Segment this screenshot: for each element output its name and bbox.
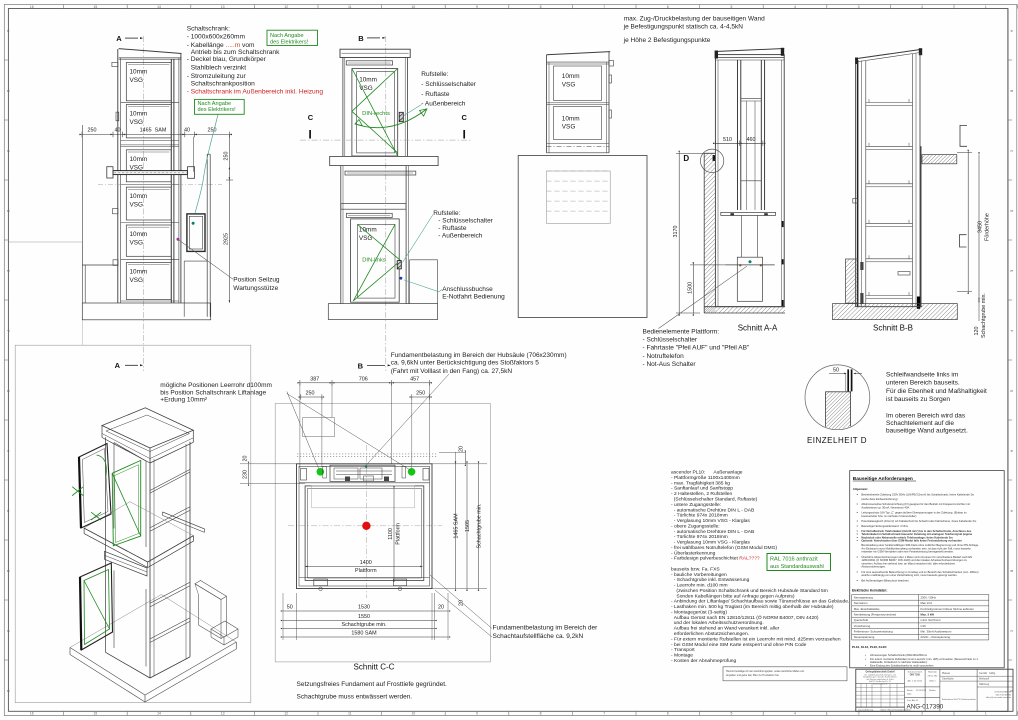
svg-text:Max. Einschaltstärke: Max. Einschaltstärke <box>854 607 880 611</box>
svg-text:(zwischen Position Schaltschra: (zwischen Position Schaltschrank und Ber… <box>671 588 828 594</box>
svg-text:10mm: 10mm <box>130 269 148 276</box>
svg-text:- Außenbereich: - Außenbereich <box>421 101 465 108</box>
svg-text:230: 230 <box>243 470 249 479</box>
svg-text:C: C <box>308 113 314 122</box>
svg-text:- Montage: - Montage <box>671 653 693 659</box>
svg-text:5: 5 <box>730 5 732 9</box>
svg-text:Nach Angabe: Nach Angabe <box>198 101 232 107</box>
svg-text:Maßstab: Maßstab <box>928 670 937 673</box>
svg-text:Vorsicherung: Vorsicherung <box>854 624 871 628</box>
svg-text:VSG: VSG <box>359 235 373 242</box>
svg-text:Hausverteiler bzw. im nächsten: Hausverteiler bzw. im nächsten Untervert… <box>861 514 916 518</box>
svg-text:1550: 1550 <box>358 614 370 620</box>
svg-text:DIN 7168: DIN 7168 <box>910 673 921 676</box>
svg-text:Nennleistung (Frequenzumrichte: Nennleistung (Frequenzumrichter) <box>854 612 897 616</box>
svg-text:- Ruftaste: - Ruftaste <box>438 225 467 232</box>
svg-text:mögliche Positionen Leerrohr d: mögliche Positionen Leerrohr d100mm <box>160 382 272 389</box>
svg-text:und der lokalen Arbeitsschutzv: und der lokalen Arbeitsschutzverordnung. <box>671 620 764 626</box>
svg-text:Schachtgrube min.: Schachtgrube min. <box>477 504 483 549</box>
svg-text:- Not-Aus Schalter: - Not-Aus Schalter <box>643 361 697 368</box>
svg-text:Allgemein:: Allgemein: <box>853 487 868 491</box>
svg-text:- Deckel blau, Grundkörper: - Deckel blau, Grundkörper <box>187 56 267 63</box>
svg-text:Antrieb bis zum Schaltschrank: Antrieb bis zum Schaltschrank <box>191 49 280 56</box>
svg-text:- automatische Drehtüre DIN L: - automatische Drehtüre DIN L - DAB <box>671 507 754 513</box>
svg-text:B: B <box>1009 90 1013 92</box>
svg-text:ca. 9,6kN unter Berücksichtigu: ca. 9,6kN unter Berücksichtigung des Sto… <box>391 360 540 367</box>
svg-text:Bauseitiger Erdungswiderstand:: Bauseitiger Erdungswiderstand: 3 Ohm <box>861 524 909 528</box>
svg-text:- Schlüsselschalter: - Schlüsselschalter <box>421 81 476 88</box>
svg-text:- obere Zugangsstelle:: - obere Zugangsstelle: <box>671 523 720 529</box>
svg-text:Blatt 1: Blatt 1 <box>929 679 936 682</box>
svg-text:Im oberen Bereich wird das: Im oberen Bereich wird das <box>886 413 966 420</box>
svg-text:- Verglasung 10mm VSG - Klargl: - Verglasung 10mm VSG - Klarglas <box>671 540 750 546</box>
svg-text:Optional: Notrufstation über G: Optional: Notrufstation über GSM-Modul f… <box>861 539 962 543</box>
svg-text:Schnitt B-B: Schnitt B-B <box>873 323 913 332</box>
svg-text:11: 11 <box>348 5 352 9</box>
svg-text:aus Standardauswahl: aus Standardauswahl <box>770 564 824 570</box>
svg-text:120: 120 <box>974 327 980 336</box>
svg-text:1: 1 <box>985 5 987 9</box>
svg-text:- Leerrohr min. d100 mm: - Leerrohr min. d100 mm <box>671 583 728 589</box>
svg-text:Werkstoff: Werkstoff <box>979 677 989 680</box>
svg-text:14: 14 <box>157 5 161 9</box>
svg-text:16: 16 <box>30 712 34 716</box>
svg-text:- Schlüsselschalter: - Schlüsselschalter <box>438 218 493 225</box>
svg-text:Setzungsfreies Fundament auf F: Setzungsfreies Fundament auf Frosttiefe … <box>297 681 448 688</box>
svg-text:6: 6 <box>667 712 669 716</box>
svg-text:Aufbau frei stehend an Wand ve: Aufbau frei stehend an Wand verankert in… <box>671 626 780 632</box>
svg-text:B: B <box>358 361 364 370</box>
svg-text:VSG: VSG <box>130 277 144 284</box>
svg-text:des Elektrikers!: des Elektrikers! <box>270 39 309 45</box>
svg-text:Gewerbegebiet 4: Gewerbegebiet 4 <box>873 683 887 686</box>
svg-text:- Farbdesign pulverbeschichtet: - Farbdesign pulverbeschichtet RAL???? <box>671 556 760 562</box>
svg-text:7: 7 <box>603 5 605 9</box>
svg-text:unteren Bereich bauseits.: unteren Bereich bauseits. <box>886 380 960 387</box>
svg-text:E-Notfahrt Bedienung: E-Notfahrt Bedienung <box>442 294 505 301</box>
svg-text:Zust. Abt. W: Zust. Abt. W <box>907 699 918 702</box>
svg-text:Bedienelemente Plattform:: Bedienelemente Plattform: <box>643 328 720 335</box>
svg-text:14: 14 <box>157 712 161 716</box>
svg-text:office@ascendor.example: office@ascendor.example <box>986 696 1012 699</box>
svg-text:- max. Tragfähigkeit 385 kg: - max. Tragfähigkeit 385 kg <box>671 480 730 486</box>
svg-text:Winkler: Winkler <box>929 690 936 692</box>
svg-text:•: • <box>857 519 858 523</box>
svg-text:A: A <box>116 34 122 43</box>
svg-text:510: 510 <box>723 137 732 143</box>
svg-text:VSG: VSG <box>562 81 576 88</box>
svg-text:F: F <box>1009 330 1013 332</box>
svg-text:1465 SAM: 1465 SAM <box>140 127 167 133</box>
svg-text:+Erdung 10mm²: +Erdung 10mm² <box>160 397 208 404</box>
svg-text:Nennstrom: Nennstrom <box>854 601 868 605</box>
svg-text:29.01.194: 29.01.194 <box>928 675 939 677</box>
svg-text:Förderhöhe: Förderhöhe <box>984 213 990 241</box>
svg-text:•: • <box>857 539 858 543</box>
svg-text:13: 13 <box>221 712 225 716</box>
svg-text:11: 11 <box>348 712 352 716</box>
svg-text:3: 3 <box>858 712 860 716</box>
svg-text:12: 12 <box>284 712 288 716</box>
svg-text:5: 5 <box>730 712 732 716</box>
svg-text:- Verglasung 10mm VSG - Klargl: - Verglasung 10mm VSG - Klarglas <box>671 518 750 524</box>
svg-text:Min. 30mA Auslösestrom: Min. 30mA Auslösestrom <box>921 629 952 633</box>
svg-text:4: 4 <box>794 5 796 9</box>
svg-text:A: A <box>115 361 121 370</box>
svg-text:Betriebsbereite Zuleitung 230V: Betriebsbereite Zuleitung 230V 50Hz (LIN… <box>861 493 975 497</box>
svg-text:EINZELHEIT D: EINZELHEIT D <box>807 436 867 445</box>
svg-text:Schnitt C-C: Schnitt C-C <box>354 663 395 672</box>
svg-text:2925: 2925 <box>223 233 229 245</box>
svg-text:B: B <box>6 570 10 572</box>
svg-text:Oberfläche: Oberfläche <box>942 677 954 680</box>
svg-text:- Kosten der Abnahmeprüfung: - Kosten der Abnahmeprüfung <box>671 658 737 664</box>
svg-text:4: 4 <box>794 712 796 716</box>
svg-text:8: 8 <box>540 712 542 716</box>
svg-text:Fundamentbelastung im Bereich: Fundamentbelastung im Bereich der <box>493 625 599 632</box>
svg-text:bis Position Schaltschrank Lif: bis Position Schaltschrank Liftanlage <box>160 389 266 396</box>
svg-text:(Schlüsselschalter Standard, R: (Schlüsselschalter Standard, Ruftaste) <box>671 497 758 503</box>
svg-text:Schnitt A-A: Schnitt A-A <box>738 323 778 332</box>
svg-text:•: • <box>857 570 858 574</box>
svg-text:je Höhe 2 Befestigungspunkte: je Höhe 2 Befestigungspunkte <box>623 37 711 44</box>
svg-text:•: • <box>857 511 858 515</box>
svg-text:VSG: VSG <box>130 119 144 126</box>
svg-text:- 1000x600x260mm: - 1000x600x260mm <box>187 34 246 41</box>
svg-text:ANG-017390: ANG-017390 <box>907 704 944 711</box>
svg-text:Schleifwandseite links im: Schleifwandseite links im <box>886 372 958 379</box>
svg-text:•: • <box>857 524 858 528</box>
svg-text:(Fahrt mit Volllast in den Fan: (Fahrt mit Volllast in den Fang) ca. 27,… <box>391 368 513 375</box>
svg-text:Max 13 A: Max 13 A <box>921 601 933 605</box>
svg-text:9: 9 <box>476 712 478 716</box>
svg-text:- frei wählbares Notruftelefon: - frei wählbares Notruftelefon (GSM Modu… <box>671 545 777 551</box>
svg-text:B: B <box>1009 570 1013 572</box>
svg-text:Nennspannung: Nennspannung <box>854 595 873 599</box>
svg-text:B: B <box>358 34 364 43</box>
svg-text:Fehlerstrom- Schutzeinrichtung: Fehlerstrom- Schutzeinrichtung <box>854 629 893 633</box>
svg-text:15: 15 <box>94 712 98 716</box>
svg-text:- Stromzuleitung zur: - Stromzuleitung zur <box>187 73 247 80</box>
svg-text:VSG: VSG <box>130 77 144 84</box>
svg-text:387: 387 <box>310 376 319 382</box>
svg-text:•: • <box>857 555 858 559</box>
svg-text:706: 706 <box>359 376 368 382</box>
svg-text:Bei Außenanlagen Blitzschutz b: Bei Außenanlagen Blitzschutz beachten. <box>861 578 909 582</box>
svg-text:10mm: 10mm <box>130 69 148 76</box>
svg-text:Position Seilzug: Position Seilzug <box>233 277 280 284</box>
svg-text:- Schlüsselschalter: - Schlüsselschalter <box>643 336 698 343</box>
svg-text:20: 20 <box>458 446 464 452</box>
svg-text:3450: 3450 <box>978 221 984 233</box>
svg-text:- Türlichte 974x 2018mm: - Türlichte 974x 2018mm <box>671 513 728 519</box>
svg-text:- automatische Drehtüre DIN L: - automatische Drehtüre DIN L - DAB <box>671 529 754 535</box>
svg-text:•: • <box>857 493 858 497</box>
svg-text:ascendor PL10: Außenanlag: ascendor PL10: Außenanlage <box>671 470 743 476</box>
svg-text:•: • <box>857 578 858 582</box>
svg-text:1400: 1400 <box>360 560 372 566</box>
svg-text:Schaltschrankposition: Schaltschrankposition <box>191 80 255 87</box>
svg-text:D: D <box>683 154 689 163</box>
svg-text:10mm: 10mm <box>130 111 148 118</box>
svg-text:C: C <box>461 113 467 122</box>
svg-text:10mm: 10mm <box>359 77 377 84</box>
svg-text:10mm: 10mm <box>130 193 148 200</box>
svg-text:- untere Zugangsstelle:: - untere Zugangsstelle: <box>671 502 721 508</box>
svg-text:- Notruftelefon: - Notruftelefon <box>643 353 685 360</box>
svg-text:3: 3 <box>858 5 860 9</box>
svg-text:9: 9 <box>476 5 478 9</box>
svg-text:460: 460 <box>747 137 756 143</box>
svg-text:- Sanftanlauf und Sanftstopp: - Sanftanlauf und Sanftstopp <box>671 486 733 492</box>
svg-text:Plattform: Plattform <box>355 568 377 574</box>
svg-text:- Schaltschrank im Außenbereic: - Schaltschrank im Außenbereich inkl. He… <box>187 89 324 96</box>
svg-text:10mm: 10mm <box>562 73 580 80</box>
svg-text:je Befestigungspunkt statisch: je Befestigungspunkt statisch ca. 4-4,5k… <box>623 24 744 31</box>
svg-text:2: 2 <box>921 5 923 9</box>
svg-text:Briefadresse! A-4715 Oberberns: Briefadresse! A-4715 Oberbernsdorfer <box>942 698 976 701</box>
svg-text:- 2 Haltestellen, 2 Rufstellen: - 2 Haltestellen, 2 Rufstellen <box>671 491 732 497</box>
svg-text:Wartungsstütze: Wartungsstütze <box>233 285 278 292</box>
svg-text:Nach Angabe: Nach Angabe <box>270 33 304 39</box>
svg-text:Bearb.: Bearb. <box>907 690 913 692</box>
svg-text:des Elektrikers!: des Elektrikers! <box>198 107 237 113</box>
svg-text:Elektrische Kenndaten:: Elektrische Kenndaten: <box>852 588 887 592</box>
svg-text:10mm: 10mm <box>562 115 580 122</box>
svg-text:bauseits bzw. Fa. FXS: bauseits bzw. Fa. FXS <box>671 566 720 572</box>
svg-text:250: 250 <box>416 391 425 397</box>
svg-text:E: E <box>1009 270 1013 272</box>
svg-text:50: 50 <box>833 367 839 373</box>
svg-text:entweder ein GSM Verstärker od: entweder ein GSM Verstärker oder eine Fe… <box>861 550 954 554</box>
svg-text:F: F <box>6 330 10 332</box>
svg-text:Anschlussbuchse: Anschlussbuchse <box>442 286 493 293</box>
svg-text:Gepr.: Gepr. <box>907 694 912 696</box>
svg-text:10: 10 <box>412 712 416 716</box>
svg-text:- bei GSM Modul eine SIM Karte: - bei GSM Modul eine SIM Karte entsperrt… <box>671 642 807 648</box>
svg-text:1500: 1500 <box>687 282 693 294</box>
svg-text:- Ruftaste: - Ruftaste <box>421 91 450 98</box>
svg-text:welche unabhängig von einer Ze: welche unabhängig von einer Zeitschaltun… <box>861 573 957 577</box>
svg-text:Hiermit bestätige ich den Ausf: Hiermit bestätige ich den Ausführungspla… <box>726 670 804 673</box>
svg-text:2: 2 <box>921 712 923 716</box>
svg-text:16: 16 <box>30 5 34 9</box>
svg-text:- Überlasterkennung: - Überlasterkennung <box>671 549 716 556</box>
svg-text:•: • <box>857 502 858 506</box>
svg-text:Sonden Kabellängen bitte auf A: Sonden Kabellängen bitte auf Anfrage geg… <box>671 593 795 599</box>
svg-text:6: 6 <box>667 5 669 9</box>
svg-text:C16: C16 <box>921 624 927 628</box>
svg-text:Schaltschrank:: Schaltschrank: <box>187 26 230 33</box>
svg-text:VSG: VSG <box>562 124 576 131</box>
svg-text:046 7/20 49090: 046 7/20 49090 <box>996 694 1012 696</box>
svg-text:Aufbau Gerüst nach EN 12810/12: Aufbau Gerüst nach EN 12810/12811 (Ö NOR… <box>671 614 819 621</box>
svg-text:Stahlblech verzinkt: Stahlblech verzinkt <box>191 65 247 72</box>
svg-text:RAL 7016 anthrazit: RAL 7016 anthrazit <box>770 557 818 563</box>
svg-text:Orthopädietechnik GmbH: Orthopädietechnik GmbH <box>866 671 895 674</box>
svg-text:Für die Ebenheit und Maßhaltig: Für die Ebenheit und Maßhaltigkeit <box>886 388 987 395</box>
svg-text:Abr. 1:20 mittel: Abr. 1:20 mittel <box>908 679 923 682</box>
svg-text:230V / 50Hz: 230V / 50Hz <box>921 595 937 599</box>
svg-text:DVS ELEVATOR: DVS ELEVATOR <box>995 691 1012 694</box>
svg-text:20: 20 <box>438 604 444 610</box>
svg-text:erforderlichen Abstutzsicherun: erforderlichen Abstutzsicherungen. <box>671 631 749 637</box>
svg-text:Schachtaufstellfläche ca. 9,2k: Schachtaufstellfläche ca. 9,2kN <box>493 633 584 640</box>
svg-text:457: 457 <box>410 376 419 382</box>
svg-text:Angaben und gebe den Plan zur: Angaben und gebe den Plan zur Produktion… <box>726 674 780 677</box>
svg-text:- Lasthaken min. 500 kg Tragla: - Lasthaken min. 500 kg Traglast (im Ber… <box>671 604 834 610</box>
svg-text:250: 250 <box>306 391 315 397</box>
svg-text:- bauliche Vorbereitungen: - bauliche Vorbereitungen <box>671 572 727 578</box>
svg-text:Absturzsicherungen.: Absturzsicherungen. <box>861 565 886 569</box>
svg-text:20: 20 <box>243 456 249 462</box>
svg-text:Schachtgrube muss entwässert w: Schachtgrube muss entwässert werden. <box>297 694 413 701</box>
svg-text:mind. 3x2,5mm²: mind. 3x2,5mm² <box>921 618 941 622</box>
svg-text:1580 SAM: 1580 SAM <box>351 631 377 637</box>
svg-text:- Transport: - Transport <box>671 647 695 653</box>
svg-text:Potentialausgleich (10mm²) mit: Potentialausgleich (10mm²) mit Kabelschu… <box>861 519 977 523</box>
svg-text:- Schachtgrube inkl. Entwässer: - Schachtgrube inkl. Entwässerung <box>671 577 750 583</box>
svg-text:50: 50 <box>287 604 293 610</box>
svg-text:VSG: VSG <box>130 202 144 209</box>
svg-text:Rufstelle:: Rufstelle: <box>421 71 448 78</box>
svg-text:Eine Erdung des Schaltschranks: Eine Erdung des Schaltschranks ist multi… <box>870 664 934 668</box>
svg-text:Abmessungen Schaltschrank (600: Abmessungen Schaltschrank (600x430x250mm <box>870 653 928 657</box>
svg-text:1100: 1100 <box>388 528 394 540</box>
svg-text:Plateau: Plateau <box>942 672 951 675</box>
svg-text:Rufstelle:: Rufstelle: <box>433 210 460 217</box>
svg-text:ist bauseits zu Sorgen: ist bauseits zu Sorgen <box>886 396 950 403</box>
svg-text:13: 13 <box>221 5 225 9</box>
svg-text:1505: 1505 <box>465 520 471 532</box>
svg-text:- Fahrtaste "Pfeil AUF" und "P: - Fahrtaste "Pfeil AUF" und "Pfeil AB" <box>643 345 750 352</box>
svg-text:•: • <box>865 664 866 668</box>
svg-text:E: E <box>6 270 10 272</box>
svg-text:250: 250 <box>208 127 217 133</box>
svg-text:- Außenbereich: - Außenbereich <box>438 233 482 240</box>
svg-text:20: 20 <box>458 600 464 606</box>
svg-text:1530: 1530 <box>358 604 370 610</box>
svg-text:•: • <box>865 657 866 661</box>
svg-text:max. Zug-/Druckbelastung der b: max. Zug-/Druckbelastung der bauseitigen… <box>624 16 765 23</box>
svg-text:- Türlichte 974x 2018mm: - Türlichte 974x 2018mm <box>671 534 728 540</box>
svg-text:24Vdc – Kleinspannung: 24Vdc – Kleinspannung <box>921 635 951 639</box>
svg-text:Datum Änderung: Datum Änderung <box>858 708 873 711</box>
svg-text:15: 15 <box>94 5 98 9</box>
svg-text:- Plattformgröße 1100x1400mm: - Plattformgröße 1100x1400mm <box>671 475 740 481</box>
svg-text:Für extern montierte Rufstelle: Für extern montierte Rufstellen ist ein … <box>870 657 979 661</box>
svg-text:B: B <box>6 90 10 92</box>
svg-text:Schachtgrube min.: Schachtgrube min. <box>342 622 387 628</box>
svg-text:bauseitige Wand aufgesetzt.: bauseitige Wand aufgesetzt. <box>886 428 968 435</box>
svg-text:40: 40 <box>115 127 121 133</box>
svg-text:23.03.2018: 23.03.2018 <box>916 690 927 692</box>
svg-text:- Montagegerüst (3-seitig): - Montagegerüst (3-seitig) <box>671 609 727 615</box>
svg-text:7: 7 <box>603 712 605 716</box>
svg-text:10mm: 10mm <box>130 156 148 163</box>
svg-text:Schachtelement auf die: Schachtelement auf die <box>886 420 954 427</box>
svg-text:3170: 3170 <box>673 226 679 238</box>
svg-text:10: 10 <box>412 5 416 9</box>
svg-text:Kurzzeitig können höhere Ström: Kurzzeitig können höhere Ströme auftrete… <box>921 607 975 611</box>
svg-text:Haltestelle, fortlaufend zu nä: Haltestelle, fortlaufend zu nächster Hal… <box>870 660 928 664</box>
svg-text:Halbzeug: Halbzeug <box>979 683 990 686</box>
svg-text:Max. 3 kW: Max. 3 kW <box>921 612 935 616</box>
svg-text:Schachtgrube min.: Schachtgrube min. <box>981 293 987 338</box>
svg-text:- Für extern montierte Rufstel: - Für extern montierte Rufstellen ist ei… <box>671 636 841 642</box>
svg-text:Gemäß Gültig: Gemäß Gültig <box>979 672 996 675</box>
svg-text:1465 SAM: 1465 SAM <box>454 513 460 539</box>
svg-text:(siehe dazu Einbauzeichnung): (siehe dazu Einbauzeichnung) <box>861 497 897 501</box>
svg-text:Querschnitt: Querschnitt <box>854 618 869 622</box>
svg-text:40: 40 <box>184 127 190 133</box>
svg-text:VSG: VSG <box>130 240 144 247</box>
svg-text:250: 250 <box>88 127 97 133</box>
svg-text:Fundamentbelastung im Bereich: Fundamentbelastung im Bereich der Hubsäu… <box>391 352 567 359</box>
svg-text:8: 8 <box>540 5 542 9</box>
svg-text:Steuerspannung: Steuerspannung <box>854 635 875 639</box>
svg-text:PL10, KL10, PL20, KL20:: PL10, KL10, PL20, KL20: <box>852 645 887 649</box>
svg-text:Plattform: Plattform <box>395 523 401 545</box>
svg-text:1: 1 <box>985 712 987 716</box>
svg-text:10mm: 10mm <box>130 231 148 238</box>
svg-text:Auslösestrom gr. 30mA, Nennstr: Auslösestrom gr. 30mA, Nennstrom 40A <box>861 505 909 509</box>
svg-text:12: 12 <box>284 5 288 9</box>
svg-text:- Anbindung der Liftanlage/ Sc: - Anbindung der Liftanlage/ Schachtaufba… <box>671 599 849 605</box>
svg-text:250: 250 <box>223 152 229 161</box>
